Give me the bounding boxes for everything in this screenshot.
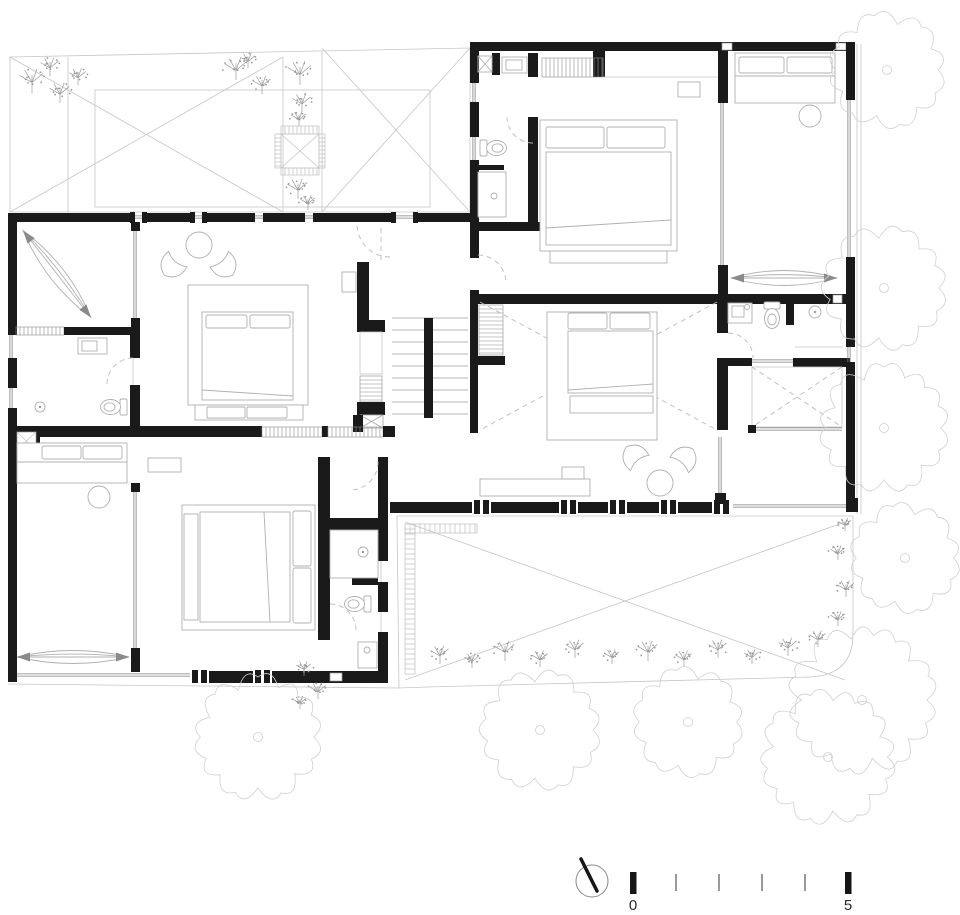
floor-plan-drawing (8, 11, 959, 824)
scale-label-end: 5 (844, 897, 852, 914)
floor-plan-canvas (0, 0, 960, 915)
scale-label-start: 0 (629, 897, 637, 914)
scale-bar (630, 872, 852, 894)
floor-plan: 0 5 (0, 0, 960, 915)
north-arrow-icon (576, 859, 608, 897)
